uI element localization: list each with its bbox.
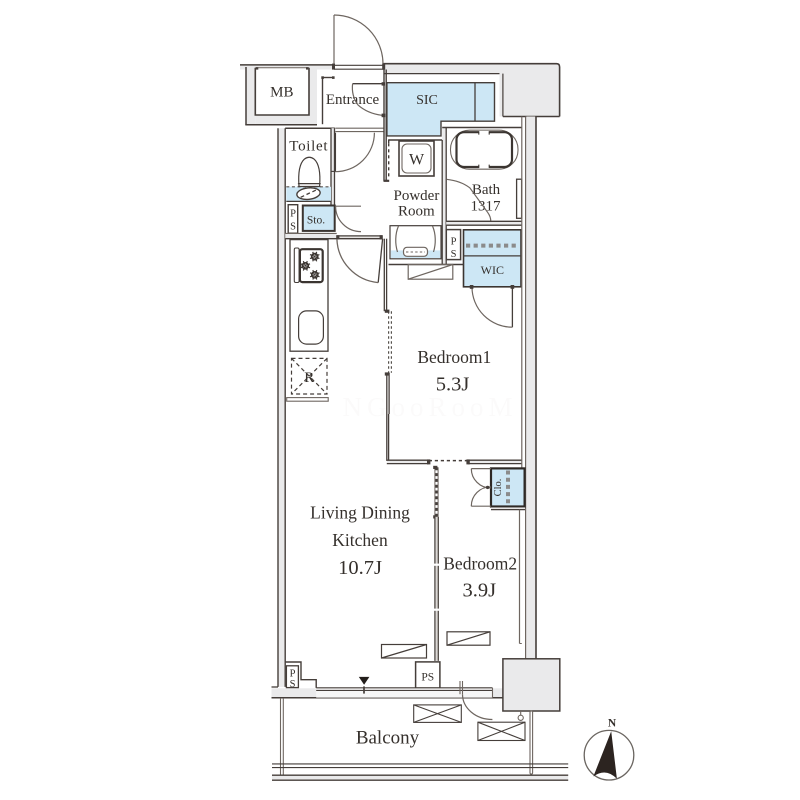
svg-text:W: W <box>409 152 425 169</box>
svg-text:NGooRooM: NGooRooM <box>342 392 517 422</box>
svg-text:N: N <box>608 718 617 730</box>
svg-text:3.9J: 3.9J <box>462 580 496 602</box>
svg-text:Sto.: Sto. <box>307 214 325 226</box>
svg-text:PS: PS <box>421 672 434 684</box>
svg-text:Balcony: Balcony <box>356 728 420 749</box>
svg-text:Toilet: Toilet <box>289 139 328 155</box>
svg-text:SIC: SIC <box>416 93 438 108</box>
svg-text:S: S <box>290 679 296 690</box>
svg-text:P: P <box>290 209 296 220</box>
svg-text:Room: Room <box>398 204 435 220</box>
svg-text:1317: 1317 <box>471 199 502 215</box>
svg-text:P: P <box>290 669 296 680</box>
svg-text:Clo.: Clo. <box>493 479 504 497</box>
svg-text:Living Dining: Living Dining <box>310 503 410 523</box>
svg-text:WIC: WIC <box>481 263 504 277</box>
svg-text:P: P <box>451 237 457 248</box>
svg-text:Powder: Powder <box>393 188 439 204</box>
svg-text:Kitchen: Kitchen <box>332 530 388 550</box>
svg-text:10.7J: 10.7J <box>338 557 382 579</box>
svg-text:S: S <box>290 222 296 233</box>
svg-text:5.3J: 5.3J <box>436 374 470 396</box>
svg-text:Bedroom1: Bedroom1 <box>417 347 491 367</box>
svg-text:S: S <box>451 249 457 260</box>
svg-text:Bedroom2: Bedroom2 <box>443 554 517 574</box>
svg-text:R: R <box>304 370 314 386</box>
svg-text:MB: MB <box>270 85 293 101</box>
